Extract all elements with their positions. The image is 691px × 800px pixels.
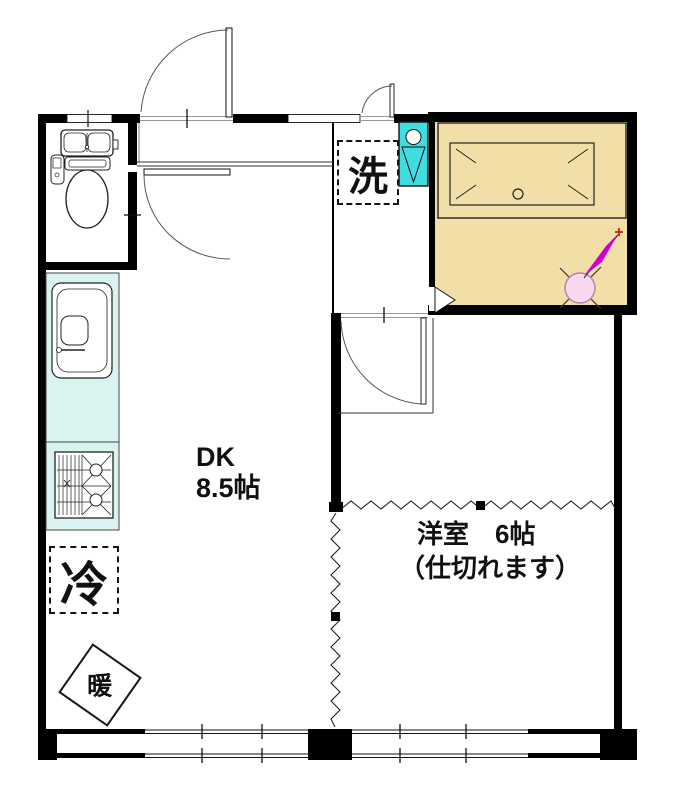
kitchen-sink-icon <box>52 283 112 378</box>
windows-top <box>67 110 360 127</box>
fridge-space-label: 冷 <box>49 546 119 614</box>
bathroom-floor <box>433 121 629 307</box>
balcony-window-right <box>352 724 528 763</box>
washroom-door <box>338 307 433 413</box>
heater-text: 暖 <box>87 667 112 703</box>
toilet-icon <box>51 130 118 228</box>
laundry-space-label: 洗 <box>337 140 399 205</box>
washroom-door-arc <box>341 321 421 404</box>
western-room-note: （仕切れます） <box>399 551 581 585</box>
balcony-window-left <box>145 724 308 763</box>
entrance-door-leaf <box>226 28 232 117</box>
hall-door-leaf <box>144 169 230 175</box>
toilet-window <box>67 115 112 123</box>
partition-zigzag-vertical <box>331 513 340 727</box>
entrance-hall <box>124 123 333 259</box>
western-room-name: 洋室 6帖 <box>399 517 581 551</box>
washbasin-icon <box>399 122 428 186</box>
hall-window <box>288 115 360 123</box>
bathroom <box>428 112 637 315</box>
laundry-text: 洗 <box>348 144 388 202</box>
dk-label: DK 8.5帖 <box>196 442 261 504</box>
entrance-door <box>140 28 233 128</box>
western-room-label: 洋室 6帖 （仕切れます） <box>399 517 581 585</box>
washroom-door-leaf <box>421 318 426 404</box>
hall-door-arc <box>144 175 230 259</box>
entrance-door-arc <box>141 30 228 112</box>
dk-size: 8.5帖 <box>196 473 261 504</box>
gas-stove-icon <box>55 452 113 518</box>
dk-name: DK <box>196 442 261 473</box>
compass-circle <box>565 273 595 303</box>
fridge-text: 冷 <box>60 545 108 615</box>
floor-plan: 洗 DK 8.5帖 洋室 6帖 （仕切れます） 冷 暖 <box>0 0 691 800</box>
partition-zigzag-horizontal <box>341 501 615 510</box>
utility-door <box>360 84 394 121</box>
